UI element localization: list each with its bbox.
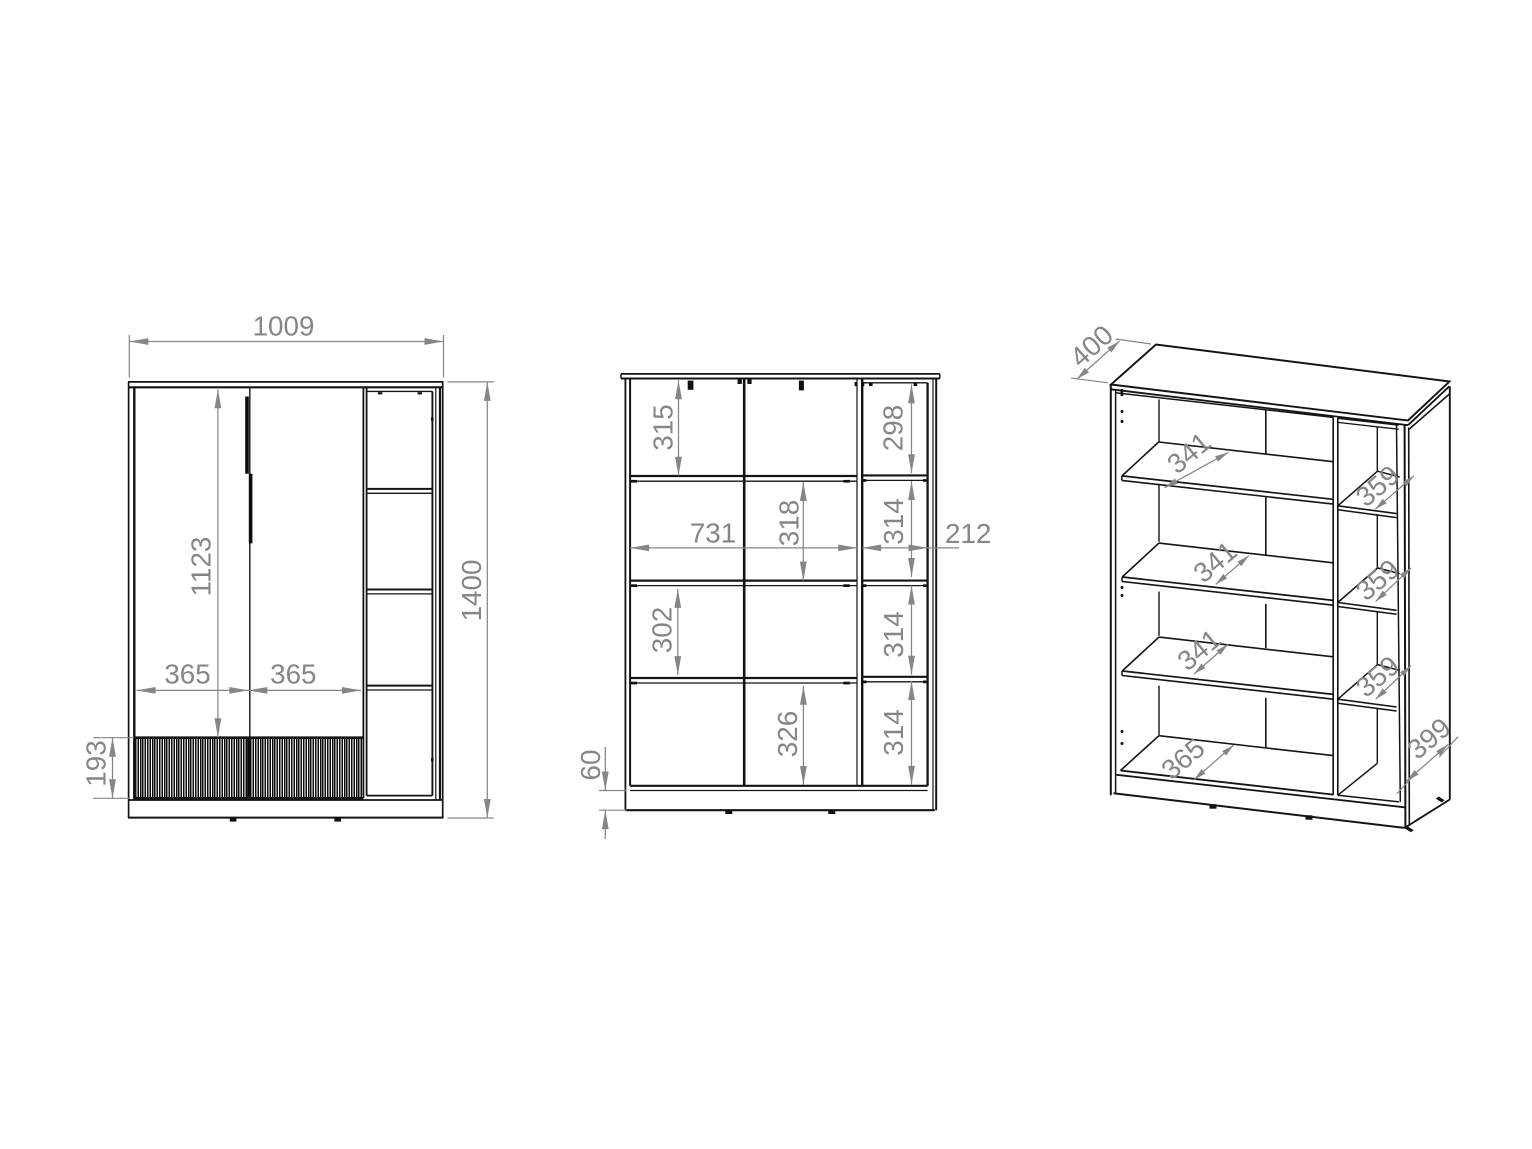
- svg-text:314: 314: [878, 498, 909, 544]
- svg-text:298: 298: [878, 405, 909, 451]
- svg-text:60: 60: [575, 750, 606, 781]
- svg-text:193: 193: [81, 740, 112, 786]
- svg-text:365: 365: [164, 659, 210, 690]
- svg-text:314: 314: [878, 611, 909, 657]
- svg-text:1123: 1123: [186, 537, 217, 597]
- svg-text:326: 326: [772, 711, 803, 757]
- svg-text:318: 318: [774, 500, 805, 546]
- svg-text:212: 212: [945, 518, 991, 549]
- svg-text:1400: 1400: [456, 560, 487, 622]
- svg-text:1009: 1009: [253, 311, 315, 342]
- svg-text:365: 365: [270, 659, 316, 690]
- svg-text:731: 731: [690, 518, 736, 549]
- svg-text:314: 314: [878, 709, 909, 755]
- svg-text:315: 315: [648, 404, 679, 450]
- svg-text:302: 302: [647, 607, 678, 653]
